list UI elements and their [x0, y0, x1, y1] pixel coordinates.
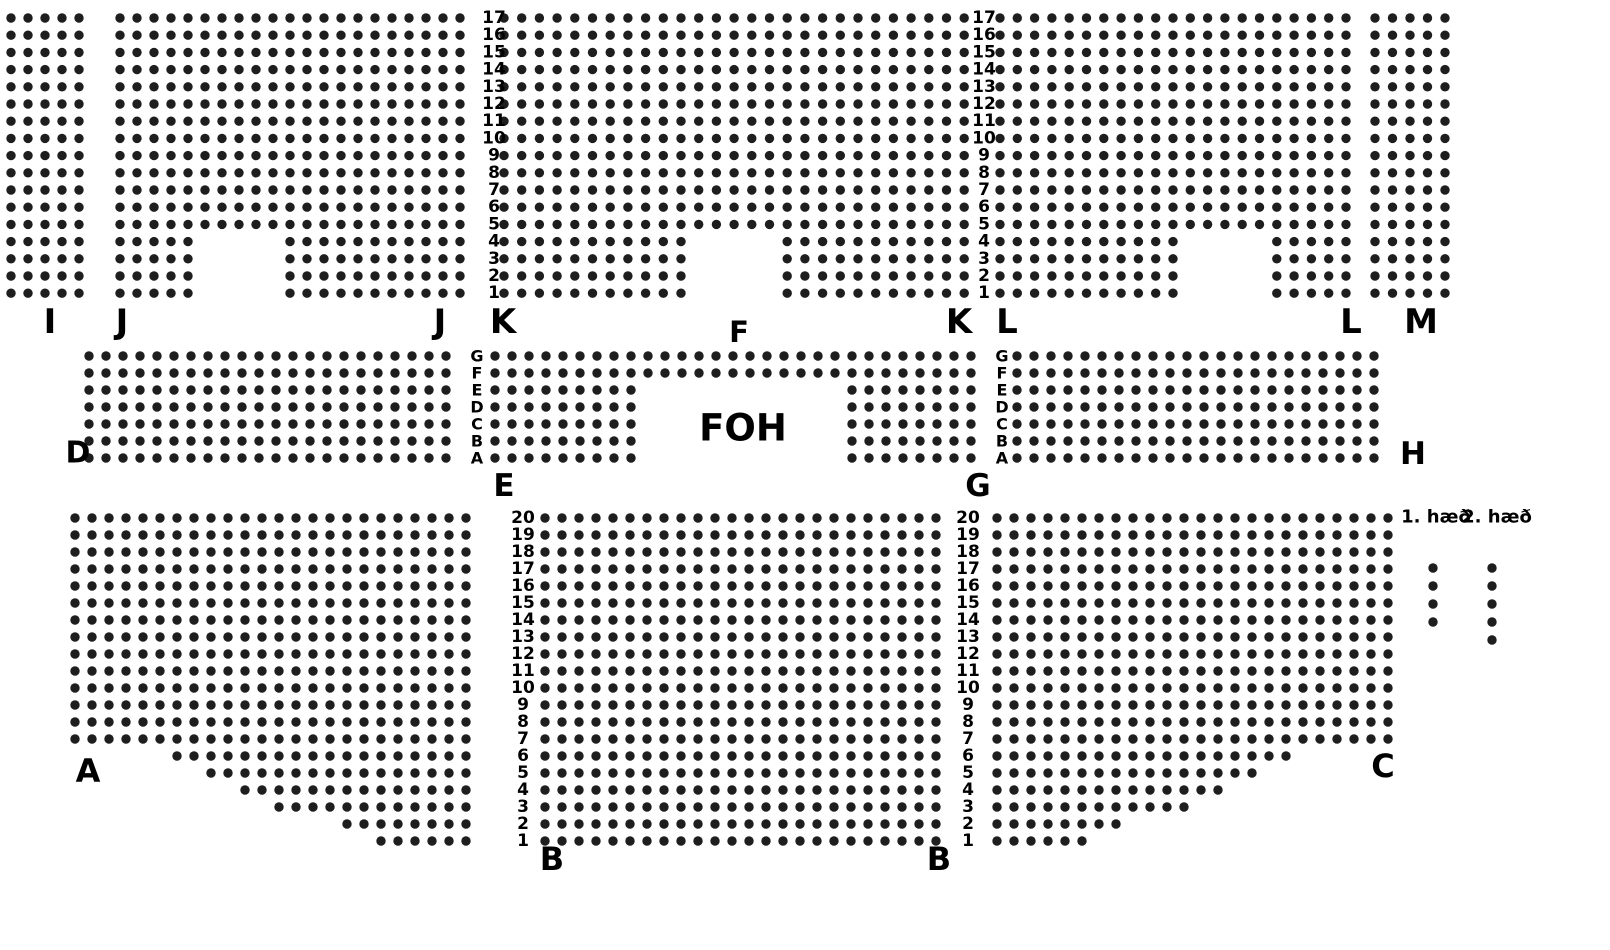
- seat-section-B[interactable]: [710, 836, 719, 845]
- seat-section-A[interactable]: [393, 802, 402, 811]
- seat-section-K[interactable]: [783, 271, 792, 280]
- seat-section-B[interactable]: [625, 666, 634, 675]
- seat-section-B[interactable]: [880, 717, 889, 726]
- seat-section-C[interactable]: [1009, 530, 1018, 539]
- seat-section-J[interactable]: [387, 151, 396, 160]
- seat-section-J[interactable]: [132, 271, 141, 280]
- seat-section-B[interactable]: [625, 751, 634, 760]
- seat-section-A[interactable]: [240, 564, 249, 573]
- seat-section-J[interactable]: [234, 99, 243, 108]
- seat-section-E[interactable]: [575, 436, 584, 445]
- seat-section-A[interactable]: [444, 802, 453, 811]
- seat-section-L[interactable]: [1341, 168, 1350, 177]
- seat-section-B[interactable]: [744, 751, 753, 760]
- seat-section-L[interactable]: [1047, 185, 1056, 194]
- seat-section-B[interactable]: [710, 564, 719, 573]
- seat-section-B[interactable]: [914, 598, 923, 607]
- seat-section-L[interactable]: [1116, 82, 1125, 91]
- seat-section-B[interactable]: [727, 683, 736, 692]
- seat-section-C[interactable]: [1026, 836, 1035, 845]
- seat-section-A[interactable]: [240, 751, 249, 760]
- seat-section-L[interactable]: [1324, 237, 1333, 246]
- seat-section-J[interactable]: [387, 254, 396, 263]
- seat-section-K[interactable]: [889, 185, 898, 194]
- seat-section-L[interactable]: [1030, 31, 1039, 40]
- seat-section-H[interactable]: [1199, 402, 1208, 411]
- seat-section-L[interactable]: [1030, 82, 1039, 91]
- seat-section-C[interactable]: [1213, 700, 1222, 709]
- seat-section-C[interactable]: [1043, 785, 1052, 794]
- seat-section-L[interactable]: [1324, 117, 1333, 126]
- seat-section-L[interactable]: [1203, 99, 1212, 108]
- seat-section-B[interactable]: [625, 768, 634, 777]
- seat-section-K[interactable]: [906, 151, 915, 160]
- seat-section-C[interactable]: [1145, 530, 1154, 539]
- seat-section-L[interactable]: [1082, 65, 1091, 74]
- seat-section-L[interactable]: [1186, 151, 1195, 160]
- seat-section-K[interactable]: [853, 82, 862, 91]
- seat-section-A[interactable]: [206, 700, 215, 709]
- seat-section-D[interactable]: [390, 453, 399, 462]
- seat-section-B[interactable]: [897, 785, 906, 794]
- seat-section-B[interactable]: [659, 547, 668, 556]
- seat-section-C[interactable]: [1111, 598, 1120, 607]
- seat-section-K[interactable]: [659, 13, 668, 22]
- seat-section-C[interactable]: [1060, 683, 1069, 692]
- seat-section-M[interactable]: [1423, 117, 1432, 126]
- seat-section-A[interactable]: [359, 768, 368, 777]
- seat-section-B[interactable]: [710, 581, 719, 590]
- seat-section-J[interactable]: [217, 65, 226, 74]
- seat-section-D[interactable]: [135, 368, 144, 377]
- seat-section-C[interactable]: [1332, 717, 1341, 726]
- seat-section-H[interactable]: [1284, 368, 1293, 377]
- seat-section-A[interactable]: [376, 819, 385, 828]
- seat-section-D[interactable]: [390, 436, 399, 445]
- seat-section-A[interactable]: [444, 768, 453, 777]
- seat-section-L[interactable]: [995, 151, 1004, 160]
- seat-section-C[interactable]: [1026, 700, 1035, 709]
- seat-section-L[interactable]: [1030, 289, 1039, 298]
- seat-section-B[interactable]: [591, 734, 600, 743]
- seat-section-K[interactable]: [517, 117, 526, 126]
- seat-section-C[interactable]: [1043, 649, 1052, 658]
- seat-section-J[interactable]: [370, 254, 379, 263]
- seat-section-K[interactable]: [818, 65, 827, 74]
- seat-section-A[interactable]: [87, 581, 96, 590]
- seat-section-K[interactable]: [836, 31, 845, 40]
- seat-section-K[interactable]: [535, 289, 544, 298]
- seat-section-K[interactable]: [676, 254, 685, 263]
- seat-section-B[interactable]: [880, 683, 889, 692]
- seat-section-F[interactable]: [932, 351, 941, 360]
- seat-section-A[interactable]: [427, 836, 436, 845]
- seat-section-F[interactable]: [745, 368, 754, 377]
- seat-section-J[interactable]: [438, 168, 447, 177]
- seat-section-B[interactable]: [812, 632, 821, 641]
- seat-section-L[interactable]: [1134, 168, 1143, 177]
- seat-section-C[interactable]: [1315, 700, 1324, 709]
- seat-section-K[interactable]: [818, 203, 827, 212]
- seat-section-L[interactable]: [1255, 117, 1264, 126]
- seat-section-L[interactable]: [1047, 65, 1056, 74]
- seat-section-B[interactable]: [642, 615, 651, 624]
- seat-section-J[interactable]: [166, 254, 175, 263]
- seat-section-L[interactable]: [1272, 13, 1281, 22]
- seat-section-A[interactable]: [121, 513, 130, 522]
- seat-section-A[interactable]: [410, 666, 419, 675]
- seat-section-C[interactable]: [1009, 785, 1018, 794]
- seat-section-L[interactable]: [1168, 203, 1177, 212]
- seat-section-K[interactable]: [676, 271, 685, 280]
- seat-section-B[interactable]: [591, 717, 600, 726]
- seat-section-J[interactable]: [455, 117, 464, 126]
- seat-section-A[interactable]: [444, 649, 453, 658]
- seat-section-C[interactable]: [1179, 785, 1188, 794]
- seat-section-K[interactable]: [676, 48, 685, 57]
- seat-section-A[interactable]: [155, 547, 164, 556]
- seat-section-H[interactable]: [1165, 419, 1174, 428]
- seat-section-K[interactable]: [800, 271, 809, 280]
- seat-section-K[interactable]: [942, 271, 951, 280]
- seat-section-B[interactable]: [608, 666, 617, 675]
- seat-section-H[interactable]: [1199, 453, 1208, 462]
- seat-section-A[interactable]: [104, 734, 113, 743]
- seat-section-J[interactable]: [132, 48, 141, 57]
- seat-section-L[interactable]: [1151, 48, 1160, 57]
- seat-section-M[interactable]: [1370, 117, 1379, 126]
- seat-section-C[interactable]: [1196, 717, 1205, 726]
- seat-section-H[interactable]: [1301, 419, 1310, 428]
- seat-section-J[interactable]: [387, 203, 396, 212]
- seat-section-B[interactable]: [727, 598, 736, 607]
- seat-section-J[interactable]: [149, 203, 158, 212]
- seat-section-B[interactable]: [761, 547, 770, 556]
- seat-section-K[interactable]: [871, 203, 880, 212]
- seat-section-K[interactable]: [783, 168, 792, 177]
- seat-section-B[interactable]: [795, 530, 804, 539]
- seat-section-B[interactable]: [931, 598, 940, 607]
- seat-section-B[interactable]: [710, 683, 719, 692]
- seat-section-L[interactable]: [1030, 220, 1039, 229]
- seat-section-A[interactable]: [410, 819, 419, 828]
- seat-section-L[interactable]: [1013, 117, 1022, 126]
- seat-section-J[interactable]: [455, 134, 464, 143]
- seat-section-J[interactable]: [404, 13, 413, 22]
- seat-section-L[interactable]: [1307, 134, 1316, 143]
- seat-section-B[interactable]: [778, 717, 787, 726]
- seat-section-L[interactable]: [1220, 134, 1229, 143]
- seat-section-K[interactable]: [535, 271, 544, 280]
- seat-section-A[interactable]: [206, 564, 215, 573]
- seat-section-H[interactable]: [1080, 453, 1089, 462]
- seat-section-C[interactable]: [1094, 649, 1103, 658]
- seat-section-L[interactable]: [1272, 237, 1281, 246]
- seat-section-L[interactable]: [1013, 220, 1022, 229]
- seat-section-I[interactable]: [23, 65, 32, 74]
- seat-section-A[interactable]: [393, 717, 402, 726]
- seat-section-K[interactable]: [853, 271, 862, 280]
- seat-section-H[interactable]: [1080, 385, 1089, 394]
- seat-section-B[interactable]: [846, 513, 855, 522]
- seat-section-C[interactable]: [1043, 700, 1052, 709]
- seat-section-K[interactable]: [818, 271, 827, 280]
- seat-section-J[interactable]: [132, 13, 141, 22]
- seat-section-C[interactable]: [1077, 717, 1086, 726]
- seat-section-B[interactable]: [863, 598, 872, 607]
- seat-section-K[interactable]: [818, 99, 827, 108]
- seat-section-L[interactable]: [1082, 134, 1091, 143]
- seat-section-B[interactable]: [880, 836, 889, 845]
- seat-section-A[interactable]: [189, 751, 198, 760]
- seat-section-D[interactable]: [135, 453, 144, 462]
- seat-section-K[interactable]: [588, 134, 597, 143]
- seat-section-L[interactable]: [1307, 168, 1316, 177]
- seat-section-I[interactable]: [6, 203, 15, 212]
- seat-section-C[interactable]: [1281, 666, 1290, 675]
- seat-section-J[interactable]: [421, 237, 430, 246]
- seat-section-C[interactable]: [1043, 632, 1052, 641]
- seat-section-H[interactable]: [1352, 419, 1361, 428]
- seat-section-C[interactable]: [1162, 802, 1171, 811]
- seat-section-E[interactable]: [575, 453, 584, 462]
- seat-section-A[interactable]: [444, 564, 453, 573]
- seat-section-D[interactable]: [84, 402, 93, 411]
- seat-section-A[interactable]: [291, 649, 300, 658]
- seat-section-B[interactable]: [676, 598, 685, 607]
- seat-section-K[interactable]: [942, 117, 951, 126]
- seat-section-I[interactable]: [6, 117, 15, 126]
- seat-section-L[interactable]: [1307, 65, 1316, 74]
- seat-section-H[interactable]: [1216, 453, 1225, 462]
- seat-section-L[interactable]: [1151, 13, 1160, 22]
- seat-section-L[interactable]: [1220, 203, 1229, 212]
- seat-section-M[interactable]: [1388, 168, 1397, 177]
- seat-section-A[interactable]: [206, 598, 215, 607]
- seat-section-E[interactable]: [507, 453, 516, 462]
- seat-section-M[interactable]: [1388, 254, 1397, 263]
- seat-section-A[interactable]: [359, 598, 368, 607]
- seat-section-L[interactable]: [1047, 271, 1056, 280]
- seat-section-A[interactable]: [342, 530, 351, 539]
- seat-section-K[interactable]: [552, 82, 561, 91]
- seat-section-H[interactable]: [1199, 351, 1208, 360]
- seat-section-A[interactable]: [291, 768, 300, 777]
- seat-section-A[interactable]: [240, 700, 249, 709]
- seat-section-D[interactable]: [390, 368, 399, 377]
- seat-section-B[interactable]: [812, 564, 821, 573]
- seat-section-J[interactable]: [421, 82, 430, 91]
- seat-section-C[interactable]: [1145, 751, 1154, 760]
- seat-section-C[interactable]: [1060, 598, 1069, 607]
- seat-section-L[interactable]: [1047, 151, 1056, 160]
- seat-section-I[interactable]: [57, 168, 66, 177]
- seat-section-B[interactable]: [540, 513, 549, 522]
- seat-section-B[interactable]: [557, 530, 566, 539]
- seat-section-J[interactable]: [251, 220, 260, 229]
- seat-section-L[interactable]: [1307, 151, 1316, 160]
- seat-section-L[interactable]: [1289, 168, 1298, 177]
- seat-section-B[interactable]: [744, 666, 753, 675]
- seat-section-C[interactable]: [1298, 547, 1307, 556]
- seat-section-J[interactable]: [438, 151, 447, 160]
- seat-section-I[interactable]: [40, 134, 49, 143]
- seat-section-C[interactable]: [1145, 632, 1154, 641]
- seat-section-I[interactable]: [74, 289, 83, 298]
- seat-section-H[interactable]: [1097, 453, 1106, 462]
- seat-section-B[interactable]: [761, 819, 770, 828]
- seat-section-H[interactable]: [1318, 351, 1327, 360]
- seat-section-F[interactable]: [541, 351, 550, 360]
- seat-section-A[interactable]: [359, 785, 368, 794]
- seat-section-G[interactable]: [966, 402, 975, 411]
- seat-section-K[interactable]: [924, 31, 933, 40]
- seat-section-C[interactable]: [1162, 666, 1171, 675]
- seat-section-K[interactable]: [694, 48, 703, 57]
- seat-section-C[interactable]: [1145, 513, 1154, 522]
- seat-section-B[interactable]: [676, 819, 685, 828]
- seat-section-B[interactable]: [540, 734, 549, 743]
- seat-section-C[interactable]: [1332, 530, 1341, 539]
- seat-section-A[interactable]: [223, 768, 232, 777]
- seat-section-K[interactable]: [960, 271, 969, 280]
- seat-section-K[interactable]: [641, 13, 650, 22]
- seat-section-C[interactable]: [1060, 530, 1069, 539]
- seat-section-H[interactable]: [1250, 402, 1259, 411]
- seat-section-K[interactable]: [641, 237, 650, 246]
- seat-section-A[interactable]: [291, 513, 300, 522]
- seat-section-L[interactable]: [1272, 203, 1281, 212]
- seat-section-J[interactable]: [302, 99, 311, 108]
- seat-section-L[interactable]: [1134, 134, 1143, 143]
- seat-section-A[interactable]: [359, 513, 368, 522]
- seat-section-L[interactable]: [1324, 48, 1333, 57]
- seat-section-J[interactable]: [115, 289, 124, 298]
- seat-section-J[interactable]: [268, 220, 277, 229]
- seat-section-A[interactable]: [342, 751, 351, 760]
- seat-section-K[interactable]: [535, 168, 544, 177]
- seat-section-A[interactable]: [138, 700, 147, 709]
- seat-section-L[interactable]: [1289, 48, 1298, 57]
- seat-section-J[interactable]: [302, 203, 311, 212]
- seat-section-J[interactable]: [438, 117, 447, 126]
- seat-section-L[interactable]: [1272, 168, 1281, 177]
- seat-section-H[interactable]: [1182, 436, 1191, 445]
- seat-section-F[interactable]: [796, 368, 805, 377]
- seat-section-K[interactable]: [783, 203, 792, 212]
- seat-section-C[interactable]: [1060, 717, 1069, 726]
- seat-section-A[interactable]: [121, 666, 130, 675]
- seat-section-K[interactable]: [676, 31, 685, 40]
- seat-section-A[interactable]: [87, 700, 96, 709]
- seat-section-L[interactable]: [1186, 82, 1195, 91]
- seat-section-C[interactable]: [1230, 666, 1239, 675]
- seat-section-J[interactable]: [319, 271, 328, 280]
- seat-section-I[interactable]: [23, 185, 32, 194]
- seat-section-B[interactable]: [829, 700, 838, 709]
- seat-section-B[interactable]: [659, 581, 668, 590]
- seat-section-M[interactable]: [1405, 203, 1414, 212]
- seat-section-K[interactable]: [535, 254, 544, 263]
- seat-section-D[interactable]: [441, 453, 450, 462]
- seat-section-F[interactable]: [728, 368, 737, 377]
- seat-section-F[interactable]: [796, 351, 805, 360]
- seat-section-J[interactable]: [234, 168, 243, 177]
- seat-section-L[interactable]: [1013, 48, 1022, 57]
- seat-section-C[interactable]: [1332, 632, 1341, 641]
- seat-section-B[interactable]: [574, 598, 583, 607]
- seat-section-J[interactable]: [285, 82, 294, 91]
- seat-section-F[interactable]: [949, 368, 958, 377]
- seat-section-A[interactable]: [410, 632, 419, 641]
- seat-section-I[interactable]: [6, 65, 15, 74]
- seat-section-H[interactable]: [1216, 368, 1225, 377]
- seat-section-A[interactable]: [206, 581, 215, 590]
- seat-section-G[interactable]: [949, 436, 958, 445]
- seat-section-B[interactable]: [574, 700, 583, 709]
- seat-section-C[interactable]: [1077, 581, 1086, 590]
- seat-section-K[interactable]: [729, 65, 738, 74]
- seat-section-D[interactable]: [356, 453, 365, 462]
- seat-section-C[interactable]: [1349, 649, 1358, 658]
- seat-section-J[interactable]: [387, 237, 396, 246]
- seat-section-A[interactable]: [87, 513, 96, 522]
- seat-section-M[interactable]: [1370, 13, 1379, 22]
- seat-section-M[interactable]: [1440, 185, 1449, 194]
- seat-section-I[interactable]: [23, 151, 32, 160]
- seat-section-J[interactable]: [115, 117, 124, 126]
- seat-section-K[interactable]: [853, 13, 862, 22]
- seat-section-A[interactable]: [376, 513, 385, 522]
- seat-section-L[interactable]: [1220, 13, 1229, 22]
- seat-section-B[interactable]: [914, 666, 923, 675]
- seat-section-A[interactable]: [121, 598, 130, 607]
- seat-section-K[interactable]: [942, 48, 951, 57]
- seat-section-K[interactable]: [783, 82, 792, 91]
- seat-section-D[interactable]: [441, 419, 450, 428]
- seat-section-A[interactable]: [461, 836, 470, 845]
- seat-section-A[interactable]: [393, 819, 402, 828]
- seat-section-L[interactable]: [1238, 13, 1247, 22]
- seat-section-B[interactable]: [744, 615, 753, 624]
- seat-section-A[interactable]: [240, 649, 249, 658]
- seat-section-J[interactable]: [234, 65, 243, 74]
- seat-section-K[interactable]: [836, 134, 845, 143]
- seat-section-J[interactable]: [387, 117, 396, 126]
- seat-section-B[interactable]: [778, 564, 787, 573]
- seat-section-A[interactable]: [393, 666, 402, 675]
- seat-section-J[interactable]: [115, 271, 124, 280]
- seat-section-J[interactable]: [234, 134, 243, 143]
- seat-section-A[interactable]: [189, 530, 198, 539]
- seat-section-B[interactable]: [625, 683, 634, 692]
- seat-section-J[interactable]: [183, 151, 192, 160]
- seat-section-K[interactable]: [552, 185, 561, 194]
- seat-section-L[interactable]: [1168, 134, 1177, 143]
- seat-section-A[interactable]: [155, 632, 164, 641]
- seat-section-B[interactable]: [693, 530, 702, 539]
- seat-section-K[interactable]: [535, 203, 544, 212]
- seat-section-D[interactable]: [220, 402, 229, 411]
- seat-section-J[interactable]: [404, 220, 413, 229]
- seat-section-C[interactable]: [1247, 683, 1256, 692]
- seat-section-J[interactable]: [132, 151, 141, 160]
- seat-section-K[interactable]: [517, 48, 526, 57]
- seat-section-M[interactable]: [1405, 289, 1414, 298]
- seat-section-J[interactable]: [268, 31, 277, 40]
- seat-section-M[interactable]: [1388, 65, 1397, 74]
- seat-section-B[interactable]: [880, 785, 889, 794]
